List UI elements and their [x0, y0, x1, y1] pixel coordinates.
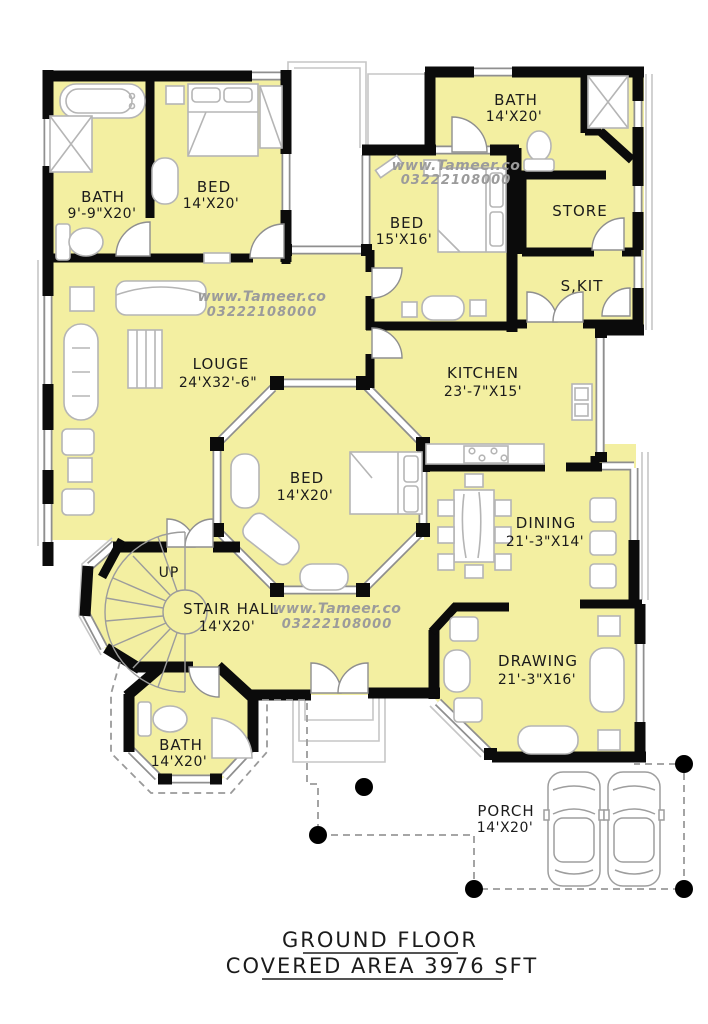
dining-table: [454, 490, 494, 562]
dining-dims: 21'-3"X14': [506, 534, 584, 550]
porch-column-dot: [465, 880, 483, 898]
bath-bottom-label: BATH: [159, 736, 203, 754]
bath-top-left-dims: 9'-9"X20': [68, 206, 137, 222]
watermark-site: www.Tameer.co: [392, 158, 521, 174]
title-block: GROUND FLOOR COVERED AREA 3976 SFT: [226, 928, 538, 979]
porch-column-dot: [355, 778, 373, 796]
bed-center-label: BED: [290, 469, 324, 487]
lounge-dims: 24'X32'-6": [179, 375, 257, 391]
edge-notch-mid: [368, 74, 426, 148]
porch-column-dot: [309, 826, 327, 844]
kitchen-dims: 23'-7"X15': [444, 384, 522, 400]
kitchen-label: KITCHEN: [447, 364, 519, 382]
watermark-phone: 03222108000: [401, 173, 512, 188]
drawing-dims: 21'-3"X16': [498, 672, 576, 688]
watermark-phone: 03222108000: [207, 305, 318, 320]
porch-label: PORCH: [477, 802, 534, 820]
toilet-top-right: [527, 131, 551, 161]
lounge-label: LOUGE: [193, 355, 250, 373]
stair-up-label: UP: [159, 565, 180, 581]
dining-label: DINING: [516, 514, 576, 532]
edge-right-band: [646, 74, 652, 330]
bed-center-dims: 14'X20': [277, 488, 333, 504]
bath-top-right-label: BATH: [494, 91, 538, 109]
edge-notch-left: [288, 62, 366, 252]
bed-top-left-label: BED: [197, 178, 231, 196]
porch-column-dot: [675, 880, 693, 898]
floor-plan-page: BATH 9'-9"X20' BED 14'X20' BATH 14'X20' …: [0, 0, 708, 1024]
stair-hall-dims: 14'X20': [199, 619, 255, 635]
bath-top-left-label: BATH: [81, 188, 125, 206]
porch-dims: 14'X20': [477, 820, 533, 836]
bath-bottom-dims: 14'X20': [151, 754, 207, 770]
stair-hall-label: STAIR HALL: [183, 600, 279, 618]
bath-top-right-dims: 14'X20': [486, 109, 542, 125]
drawing-label: DRAWING: [498, 652, 578, 670]
store-label: STORE: [552, 202, 607, 220]
bed-middle-label: BED: [390, 214, 424, 232]
porch-column-dot: [675, 755, 693, 773]
plan-title: GROUND FLOOR: [282, 928, 478, 952]
toilet-bottom-tank: [138, 702, 151, 736]
bed-middle-dims: 15'X16': [376, 232, 432, 248]
plan-covered-area: COVERED AREA 3976 SFT: [226, 954, 538, 978]
watermark-site: www.Tameer.co: [198, 289, 327, 305]
car-icon: [544, 772, 604, 886]
watermark-phone: 03222108000: [282, 617, 393, 632]
spare-kitchen-label: S,KIT: [561, 277, 604, 295]
shower-closet: [50, 116, 92, 172]
door-marker: [204, 253, 230, 263]
watermark-site: www.Tameer.co: [273, 601, 402, 617]
edge-dining-band: [642, 452, 648, 600]
floor-plan-drawing: BATH 9'-9"X20' BED 14'X20' BATH 14'X20' …: [0, 0, 708, 1024]
car-icon: [604, 772, 664, 886]
toilet-bottom: [153, 706, 187, 732]
bed-top-left-dims: 14'X20': [183, 196, 239, 212]
kitchen-counter: [426, 444, 544, 464]
